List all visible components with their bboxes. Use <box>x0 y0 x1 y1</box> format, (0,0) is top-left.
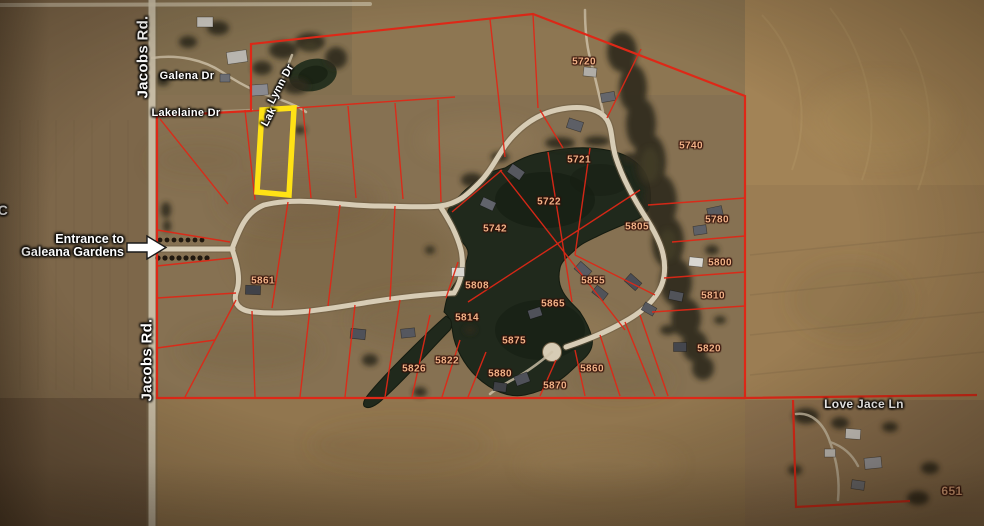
entrance-annotation-line1: Entrance to <box>18 233 124 246</box>
aerial-plat-map: Jacobs Rd.Jacobs Rd.Galena DrLakelaine D… <box>0 0 984 526</box>
aerial-photo <box>0 0 984 526</box>
entrance-annotation-line2: Galeana Gardens <box>18 246 124 259</box>
entrance-annotation: Entrance to Galeana Gardens <box>18 233 124 258</box>
